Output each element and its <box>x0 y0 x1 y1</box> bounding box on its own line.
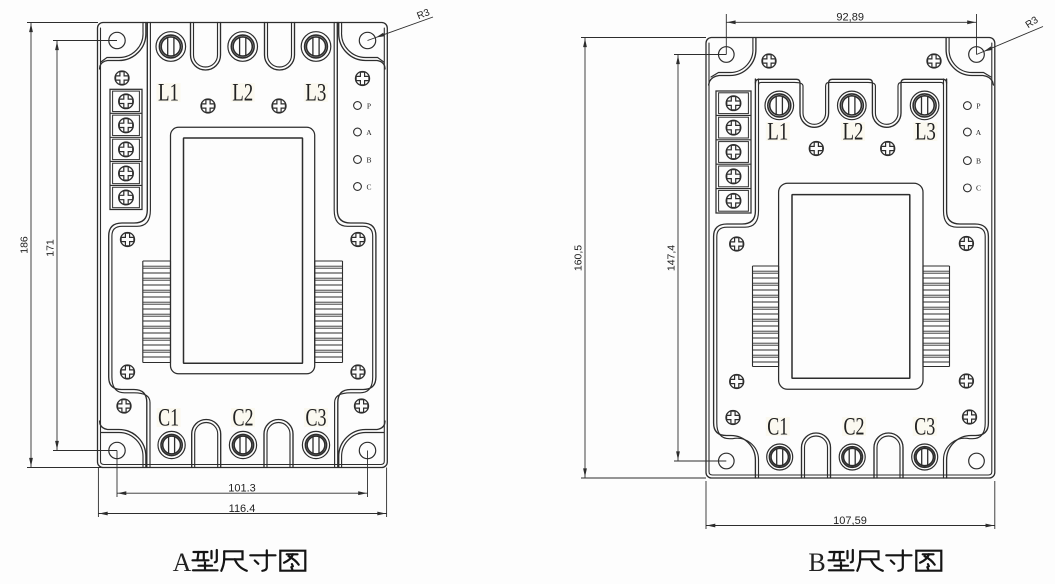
svg-text:C3: C3 <box>306 405 327 432</box>
svg-text:C: C <box>366 182 371 191</box>
svg-text:P: P <box>976 101 980 110</box>
svg-text:C2: C2 <box>233 405 254 432</box>
svg-text:C1: C1 <box>767 414 788 441</box>
svg-text:C: C <box>976 184 981 193</box>
svg-text:A: A <box>173 548 192 577</box>
svg-text:C2: C2 <box>844 414 865 441</box>
svg-text:L1: L1 <box>767 119 788 146</box>
svg-text:186: 186 <box>19 236 31 254</box>
svg-text:171: 171 <box>45 239 57 257</box>
svg-text:A: A <box>976 128 982 137</box>
svg-text:L2: L2 <box>232 80 253 107</box>
svg-text:L3: L3 <box>915 119 936 146</box>
svg-text:B: B <box>366 155 371 164</box>
svg-text:L3: L3 <box>305 80 326 107</box>
svg-text:A: A <box>366 128 372 137</box>
svg-text:92,89: 92,89 <box>836 12 864 24</box>
svg-text:L1: L1 <box>158 80 179 107</box>
svg-text:B: B <box>976 156 981 165</box>
svg-text:160,5: 160,5 <box>573 245 585 271</box>
svg-text:C3: C3 <box>914 414 935 441</box>
svg-text:101.3: 101.3 <box>228 483 256 495</box>
svg-text:116.4: 116.4 <box>229 503 256 515</box>
svg-text:P: P <box>367 101 371 110</box>
svg-text:B: B <box>808 548 825 577</box>
svg-text:C1: C1 <box>158 405 179 432</box>
svg-text:107,59: 107,59 <box>833 515 867 527</box>
svg-text:147,4: 147,4 <box>666 245 678 271</box>
svg-text:L2: L2 <box>843 119 864 146</box>
